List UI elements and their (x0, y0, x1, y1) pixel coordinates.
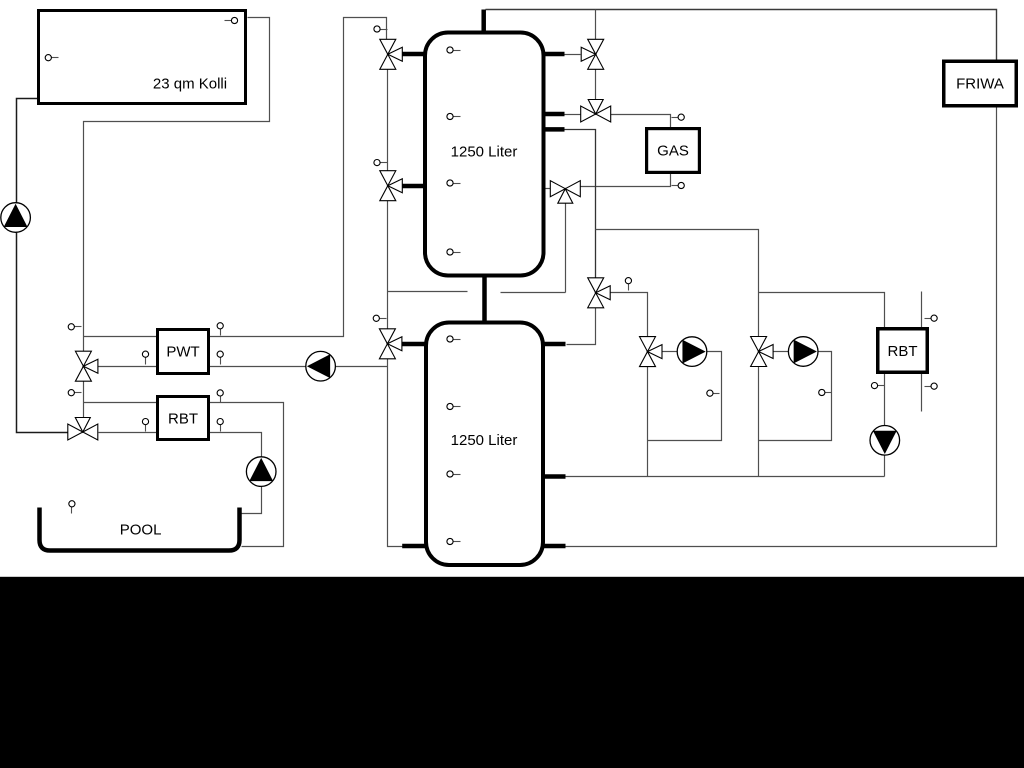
svg-text:1250 Liter: 1250 Liter (451, 144, 518, 161)
svg-text:1250 Liter: 1250 Liter (451, 432, 518, 449)
svg-text:RBT: RBT (888, 343, 918, 360)
svg-text:RBT: RBT (168, 411, 198, 428)
svg-text:GAS: GAS (657, 143, 689, 160)
svg-text:FRIWA: FRIWA (956, 76, 1004, 93)
svg-text:PWT: PWT (166, 344, 199, 361)
svg-text:POOL: POOL (120, 522, 162, 539)
svg-text:23 qm Kolli: 23 qm Kolli (153, 76, 227, 93)
